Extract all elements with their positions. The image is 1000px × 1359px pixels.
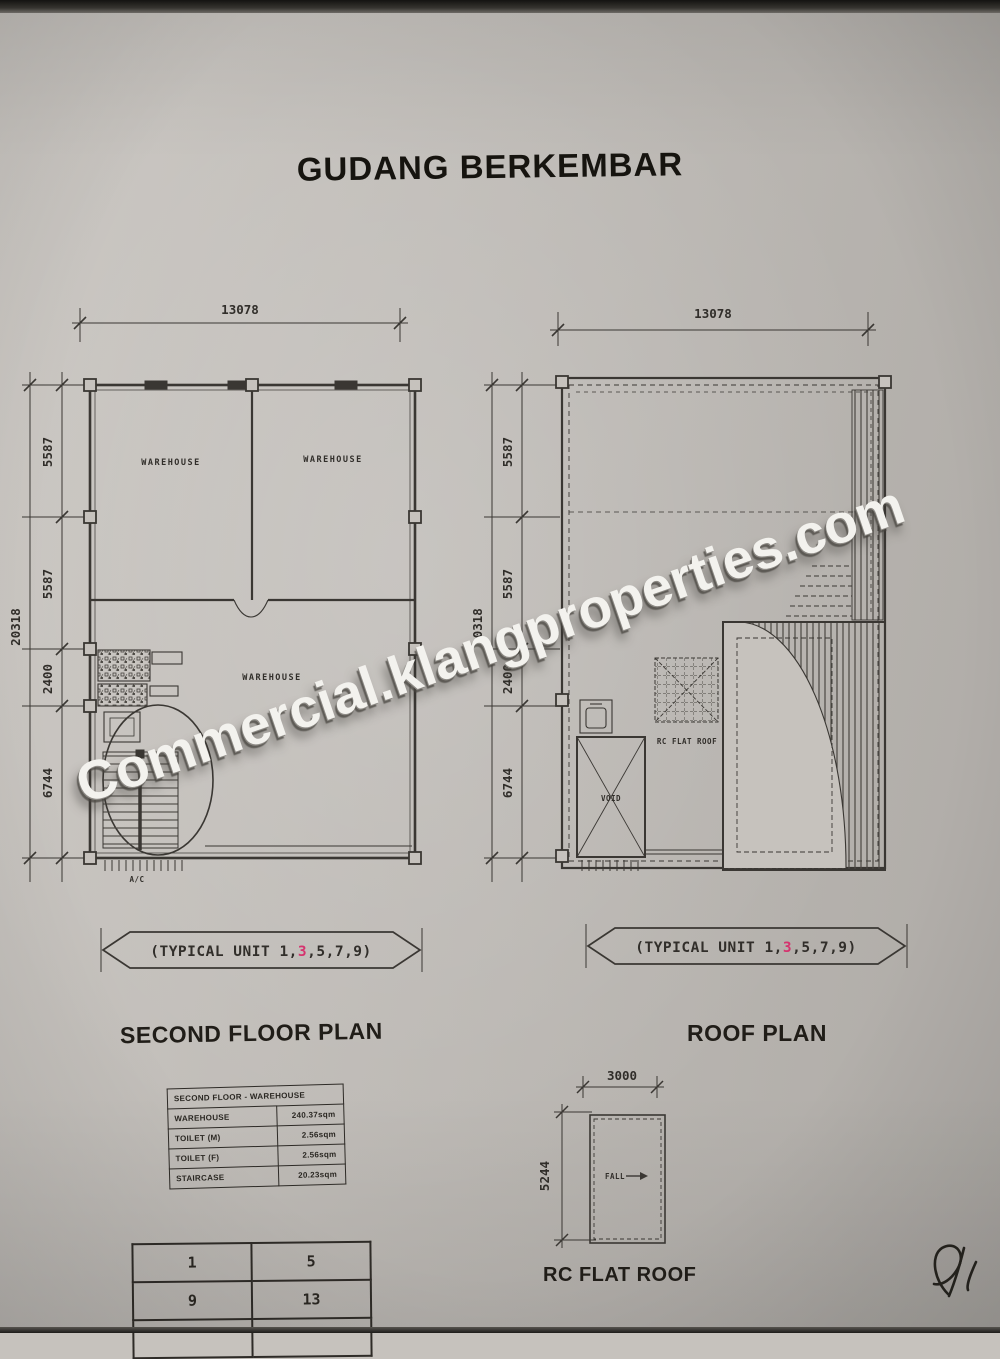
roof-rc-flat-roof-label: RC FLAT ROOF — [657, 737, 717, 746]
roof-seg4-dim: 6744 — [500, 768, 515, 798]
roof-banner-text: (TYPICAL UNIT 1,3,5,7,9) — [635, 940, 857, 956]
sfp-seg2-dim: 5587 — [40, 569, 55, 599]
unit-number-table: 1 5 9 13 — [131, 1241, 372, 1359]
sfp-top-dimension: 13078 — [72, 302, 408, 342]
area-row-value: 240.37sqm — [277, 1104, 344, 1126]
sfp-seg1-dim: 5587 — [40, 437, 55, 467]
sfp-toilet-block — [98, 650, 182, 706]
roof-seg1-dim: 5587 — [500, 437, 515, 467]
table-row: 1 5 — [132, 1242, 370, 1282]
roof-void: VOID — [577, 737, 723, 871]
roof-skylight-hatch — [655, 658, 718, 722]
unit-cell — [252, 1318, 371, 1357]
mini-width-dim: 3000 — [607, 1068, 637, 1083]
photo-dark-edge-top — [0, 0, 1000, 13]
table-row: STAIRCASE 20.23sqm — [169, 1164, 345, 1189]
sfp-warehouse-top-left-label: WAREHOUSE — [141, 458, 201, 468]
roof-seg2-dim: 5587 — [500, 569, 515, 599]
sfp-typical-unit-banner: (TYPICAL UNIT 1,3,5,7,9) — [101, 928, 422, 972]
photo-dark-edge-bottom — [0, 1327, 1000, 1333]
roof-tank-fixture — [580, 700, 612, 733]
area-row-value: 20.23sqm — [278, 1164, 345, 1186]
table-row — [133, 1318, 371, 1358]
mini-height-dim: 5244 — [537, 1161, 552, 1191]
sfp-warehouse-top-right-label: WAREHOUSE — [303, 455, 363, 465]
second-floor-plan-drawing: 13078 20318 5587 5587 2400 6744 — [8, 302, 422, 972]
photographed-floor-plan-page: { "page": { "title": "GUDANG BERKEMBAR",… — [0, 0, 1000, 1333]
area-row-value: 2.56sqm — [277, 1124, 344, 1146]
mini-fall-label: FALL — [605, 1172, 625, 1181]
unit-cell: 13 — [252, 1280, 371, 1319]
fall-direction-arrow-icon — [640, 1172, 648, 1180]
rc-flat-roof-mini-plan: 3000 5244 FALL — [537, 1068, 665, 1248]
unit-cell — [133, 1319, 252, 1358]
roof-void-label: VOID — [601, 794, 621, 803]
unit-cell: 1 — [132, 1243, 251, 1282]
sfp-total-height-dim: 20318 — [8, 608, 23, 646]
roof-width-dim: 13078 — [694, 306, 732, 321]
area-schedule-table: SECOND FLOOR - WAREHOUSE WAREHOUSE 240.3… — [167, 1084, 347, 1190]
sfp-seg3-dim: 2400 — [40, 664, 55, 694]
sfp-ac-label: A/C — [129, 875, 144, 884]
roof-top-dimension: 13078 — [550, 306, 876, 346]
sfp-banner-text: (TYPICAL UNIT 1,3,5,7,9) — [150, 944, 372, 960]
signature-mark — [934, 1246, 976, 1296]
sfp-width-dim: 13078 — [221, 302, 259, 317]
area-row-value: 2.56sqm — [278, 1144, 345, 1166]
roof-main-deck — [723, 622, 885, 870]
table-row: 9 13 — [133, 1280, 371, 1320]
roof-typical-unit-banner: (TYPICAL UNIT 1,3,5,7,9) — [586, 924, 907, 968]
unit-cell: 5 — [251, 1242, 370, 1281]
area-row-label: STAIRCASE — [169, 1166, 279, 1189]
unit-cell: 9 — [133, 1281, 252, 1320]
